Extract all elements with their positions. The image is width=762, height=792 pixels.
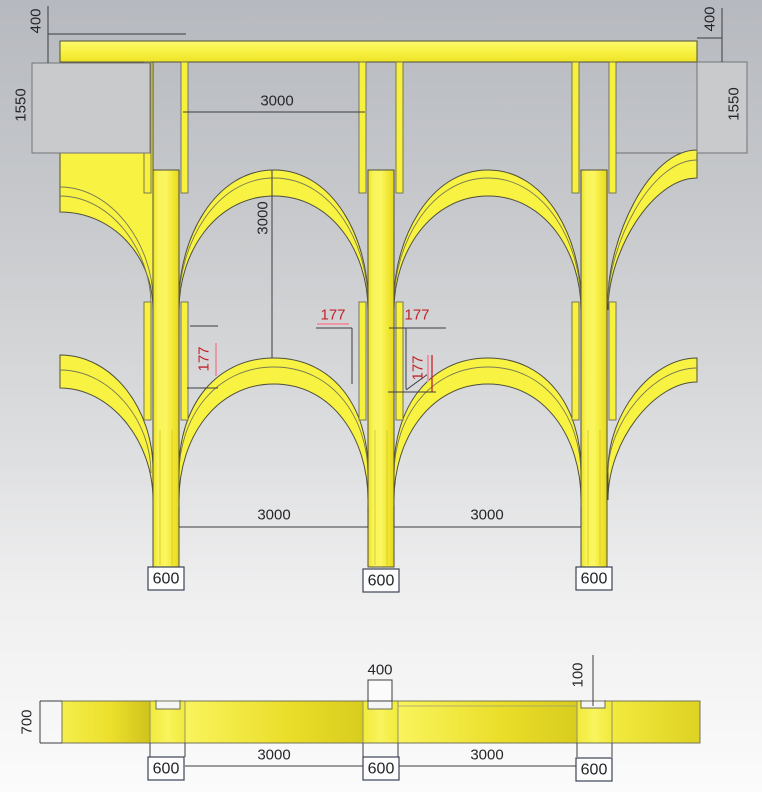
- dim-end-wall-left: 1550: [13, 88, 30, 121]
- fin-top-col3-left: [572, 62, 579, 193]
- column-3: [581, 170, 607, 567]
- fin-mid-col1-right: [181, 302, 188, 420]
- column-2: [368, 170, 394, 567]
- dim-section-column-width-1: 600: [153, 761, 180, 778]
- bar-segment-3: [398, 701, 577, 743]
- dim-section-column-width-2: 600: [368, 761, 395, 778]
- column-1: [153, 170, 179, 567]
- dim-beam-height-right: 400: [702, 6, 719, 31]
- dim-bottom-span-left: 3000: [257, 507, 290, 524]
- dim-span-right: 3000: [470, 747, 503, 764]
- fin-mid-col3-right: [609, 302, 616, 420]
- bar-segment-2: [185, 701, 363, 743]
- dim-arch-offset-1: 177: [196, 346, 213, 371]
- drawing-svg: 400 400 1550 1550 3000 3000 177 177 177 …: [0, 0, 762, 792]
- dim-depth: 700: [19, 709, 36, 734]
- dim-span-left: 3000: [257, 747, 290, 764]
- dim-bottom-span-right: 3000: [470, 507, 503, 524]
- dim-arch-offset-3: 177: [404, 307, 429, 324]
- fin-mid-col1-left: [144, 302, 151, 420]
- bar-segment-4: [612, 701, 700, 743]
- fin-mid-col2-left: [359, 302, 366, 420]
- dim-column-width-2: 600: [368, 573, 395, 590]
- dim-notch-depth: 100: [570, 662, 587, 687]
- fin-top-col2-right: [396, 62, 403, 193]
- dim-arch-offset-4: 177: [410, 355, 427, 380]
- top-beam: [60, 41, 697, 62]
- end-wall-panel-left: [32, 63, 150, 153]
- cad-drawing-canvas: 400 400 1550 1550 3000 3000 177 177 177 …: [0, 0, 762, 792]
- fin-top-col1-right: [181, 62, 188, 193]
- fin-top-col2-left: [359, 62, 366, 193]
- bar-segment-1: [62, 701, 150, 743]
- dim-column-width-3: 600: [581, 571, 608, 588]
- fin-top-col3-right: [609, 62, 616, 193]
- dim-arch-offset-2: 177: [320, 307, 345, 324]
- dim-beam-height-left: 400: [28, 8, 45, 33]
- fin-mid-col2-right: [396, 302, 403, 420]
- fin-mid-col3-left: [572, 302, 579, 420]
- dim-section-column-width-3: 600: [581, 762, 608, 779]
- dim-story-height: 3000: [255, 201, 272, 234]
- dim-notch-width: 400: [367, 662, 392, 679]
- dim-top-span: 3000: [260, 93, 293, 110]
- dim-column-width-1: 600: [153, 571, 180, 588]
- dim-box-notch-width: [368, 680, 392, 701]
- dim-end-wall-right: 1550: [726, 87, 743, 120]
